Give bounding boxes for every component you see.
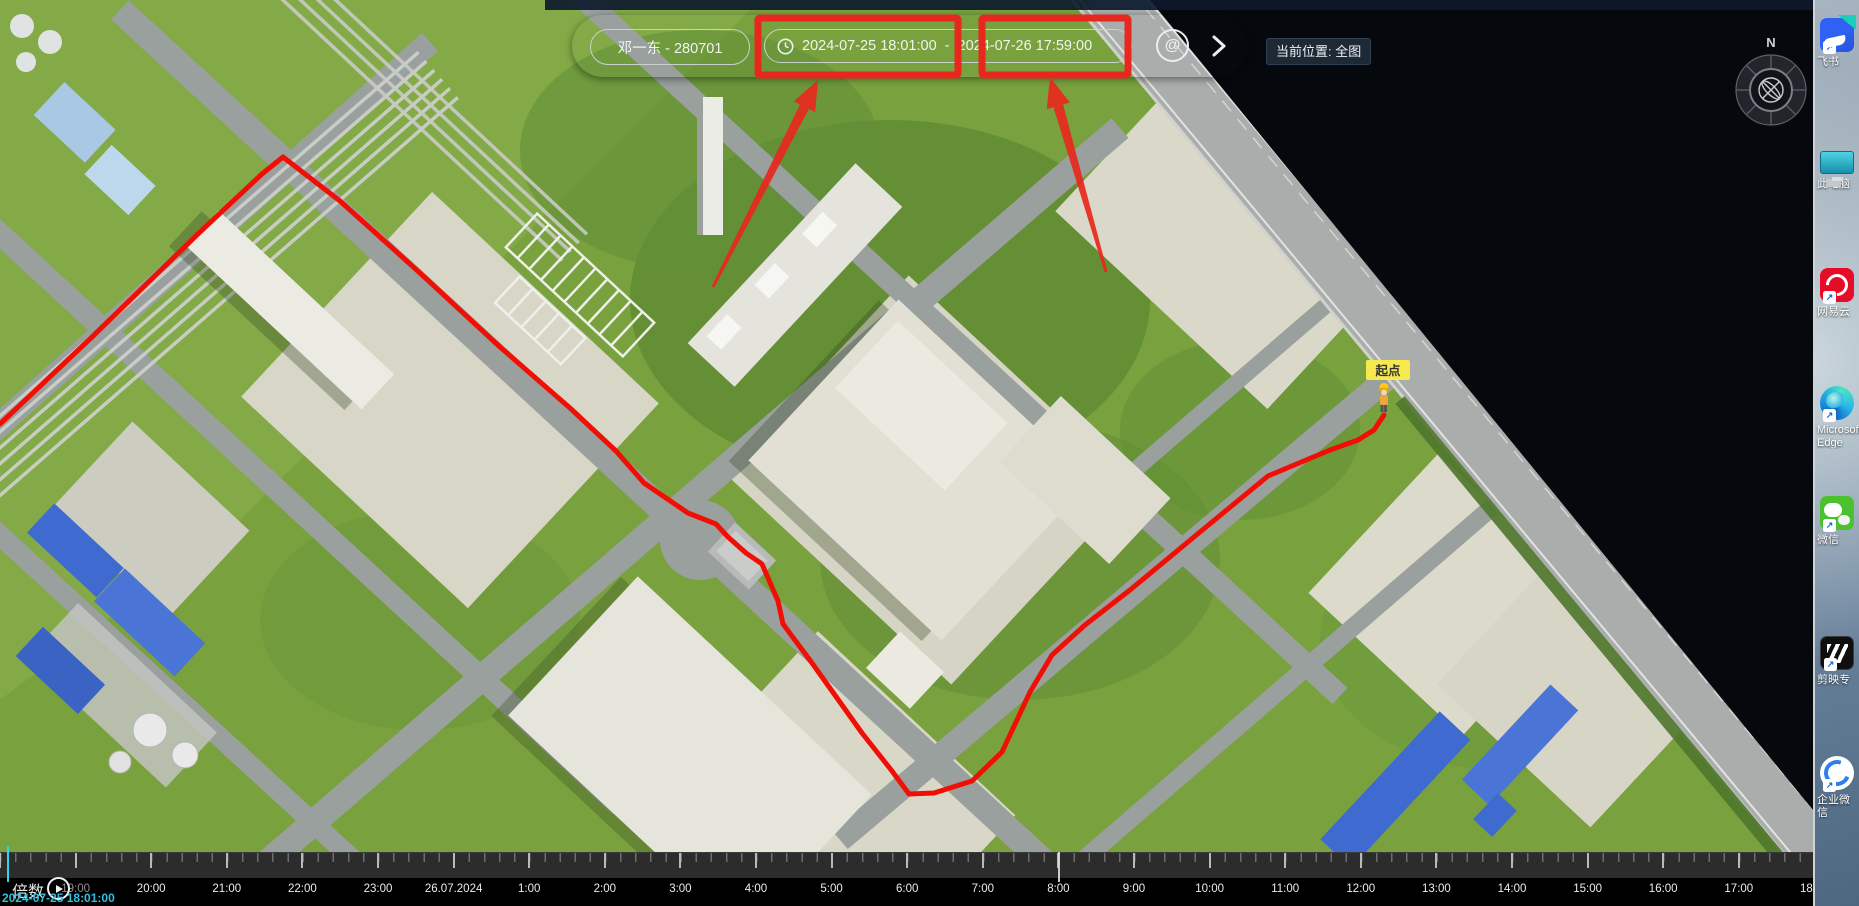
shortcut-arrow-icon [1823,41,1836,54]
timeline-playhead[interactable] [7,846,9,882]
hour-tick [604,853,606,868]
timeline-hour-label: 14:00 [1498,883,1527,895]
desktop-icon-wecom[interactable]: 企业微信 [1815,756,1859,819]
hour-tick [453,853,455,868]
current-location-label: 当前位置: 全图 [1266,38,1371,65]
date-end-value[interactable]: 2024-07-26 17:59:00 [958,38,1093,54]
start-point-label: 起点 [1374,363,1401,378]
person-select[interactable]: 邓一东 - 280701 [590,29,750,65]
hour-tick [301,853,303,868]
hour-tick [1209,853,1211,868]
timeline-hour-label: 13:00 [1422,883,1451,895]
hour-tick [75,853,77,868]
hour-tick [0,853,1,868]
desktop-icon-this-pc[interactable]: 此电脑 [1815,146,1859,191]
person-label: 邓一东 - 280701 [618,37,723,58]
date-range-picker[interactable]: 2024-07-25 18:01:00 - 2024-07-26 17:59:0… [764,29,1132,63]
timeline-hour-label: 20:00 [137,883,166,895]
desktop-icon-netease[interactable]: 网易云 [1815,268,1859,319]
hour-tick [1511,853,1513,868]
hour-tick [1738,853,1740,868]
timeline-hour-label: 10:00 [1195,883,1224,895]
timeline-bar: 19:0020:0021:0022:0023:0026.07.20241:002… [0,846,1813,906]
hour-tick [377,853,379,868]
shortcut-arrow-icon [1823,519,1836,532]
hour-tick [679,853,681,868]
desktop-icon-feishu[interactable]: 飞书 [1815,18,1859,69]
shortcut-arrow-icon [1824,658,1837,671]
hour-tick [1133,853,1135,868]
edge-app-icon [1820,386,1854,420]
timeline-hour-label: 22:00 [288,883,317,895]
timeline-hour-label: 8:00 [1047,883,1069,895]
timeline-hour-label: 18:00 [1800,883,1815,895]
wecom-app-icon [1820,756,1854,790]
timeline-hour-label: 16:00 [1649,883,1678,895]
campus-map-canvas[interactable]: 起点 [0,0,1813,852]
timeline-hour-label: 3:00 [669,883,691,895]
hour-tick [982,853,984,868]
hour-tick [1435,853,1437,868]
hour-tick [831,853,833,868]
timeline-hour-label: 5:00 [820,883,842,895]
timeline-hour-label: 12:00 [1346,883,1375,895]
shortcut-arrow-icon [1823,409,1836,422]
desktop-icon-label: Microsoft Edge [1815,424,1859,449]
desktop-icon-wechat[interactable]: 微信 [1815,496,1859,547]
hour-tick [150,853,152,868]
hour-tick [1360,853,1362,868]
timeline-hour-label: 21:00 [212,883,241,895]
capcut-app-icon [1820,636,1854,670]
netease-app-icon [1820,268,1854,302]
desktop-icon-capcut[interactable]: 剪映专 [1815,636,1859,687]
desktop-icon-label: 微信 [1815,534,1859,547]
hour-tick [528,853,530,868]
shortcut-arrow-icon [1823,291,1836,304]
hour-tick [755,853,757,868]
map-window: 起点 邓一东 - 280701 2024-07-25 18:01:00 - 20… [0,0,1815,906]
timeline-hour-label: 2:00 [594,883,616,895]
desktop-icon-label: 网易云 [1815,306,1859,319]
windows-desktop-strip: 飞书此电脑网易云Microsoft Edge微信剪映专企业微信 [1815,0,1859,906]
timeline-hour-label: 7:00 [972,883,994,895]
hour-tick [226,853,228,868]
shortcut-arrow-icon [1823,779,1836,792]
date-start-value[interactable]: 2024-07-25 18:01:00 [802,38,937,54]
desktop-icon-label: 剪映专 [1815,674,1859,687]
hour-tick [906,853,908,868]
timeline-ruler[interactable] [0,852,1813,879]
wechat-app-icon [1820,496,1854,530]
clock-icon [777,38,794,55]
timeline-hour-label: 9:00 [1123,883,1145,895]
hour-tick [1662,853,1664,868]
timeline-hour-label: 1:00 [518,883,540,895]
compass-north-label: N [1766,35,1775,50]
search-icon: @ [1165,37,1181,55]
timeline-hour-label: 23:00 [364,883,393,895]
feishu-app-icon [1820,18,1854,52]
playhead-time-label: 2024-07-25 18:01:00 [2,891,115,905]
hour-tick [1587,853,1589,868]
search-toolbar: 邓一东 - 280701 2024-07-25 18:01:00 - 2024-… [572,15,1248,77]
timeline-hour-label: 11:00 [1271,883,1299,895]
timeline-hour-label: 15:00 [1573,883,1602,895]
chevron-right-icon [1214,37,1224,55]
search-button[interactable]: @ [1156,29,1189,62]
desktop-icon-label: 企业微信 [1815,794,1859,819]
play-forward-button[interactable] [1204,32,1232,60]
timeline-hour-label: 4:00 [745,883,767,895]
hour-tick [1284,853,1286,868]
this-pc-app-icon [1820,151,1854,174]
date-separator: - [945,38,950,54]
desktop-icon-label: 飞书 [1815,56,1859,69]
screen: 起点 邓一东 - 280701 2024-07-25 18:01:00 - 20… [0,0,1859,906]
timeline-labels: 19:0020:0021:0022:0023:0026.07.20241:002… [0,878,1813,906]
timeline-hour-label: 26.07.2024 [425,883,483,895]
timeline-hour-label: 6:00 [896,883,918,895]
timeline-hour-label: 17:00 [1724,883,1753,895]
desktop-icon-edge[interactable]: Microsoft Edge [1815,386,1859,449]
timeline-marker [1058,852,1060,882]
compass-control[interactable]: N [1728,28,1814,144]
